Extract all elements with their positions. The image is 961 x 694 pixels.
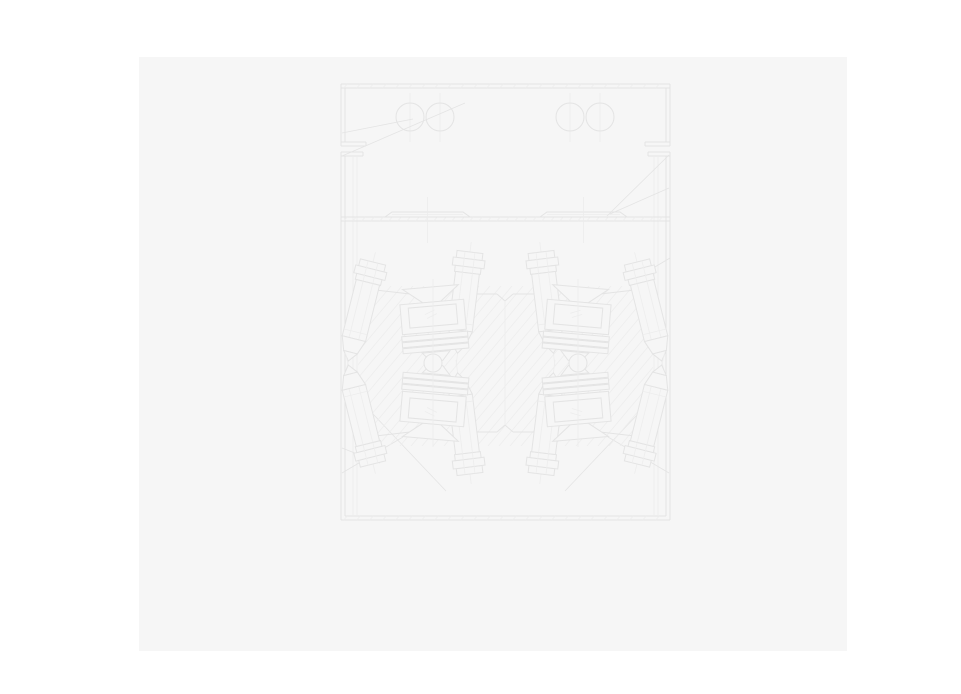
bolt-assembly xyxy=(619,349,675,478)
technical-drawing xyxy=(335,78,675,526)
rail xyxy=(385,197,470,243)
bolt-assembly xyxy=(335,349,391,478)
divider-shelf xyxy=(341,217,670,221)
canvas-background xyxy=(0,0,961,694)
top-bolt-circles xyxy=(396,93,614,142)
document-page xyxy=(139,57,847,651)
frame xyxy=(341,84,670,520)
border-section-ticks xyxy=(344,84,659,520)
leader-lines xyxy=(342,103,670,491)
rail xyxy=(540,197,627,243)
bolt-assembly xyxy=(335,248,391,377)
